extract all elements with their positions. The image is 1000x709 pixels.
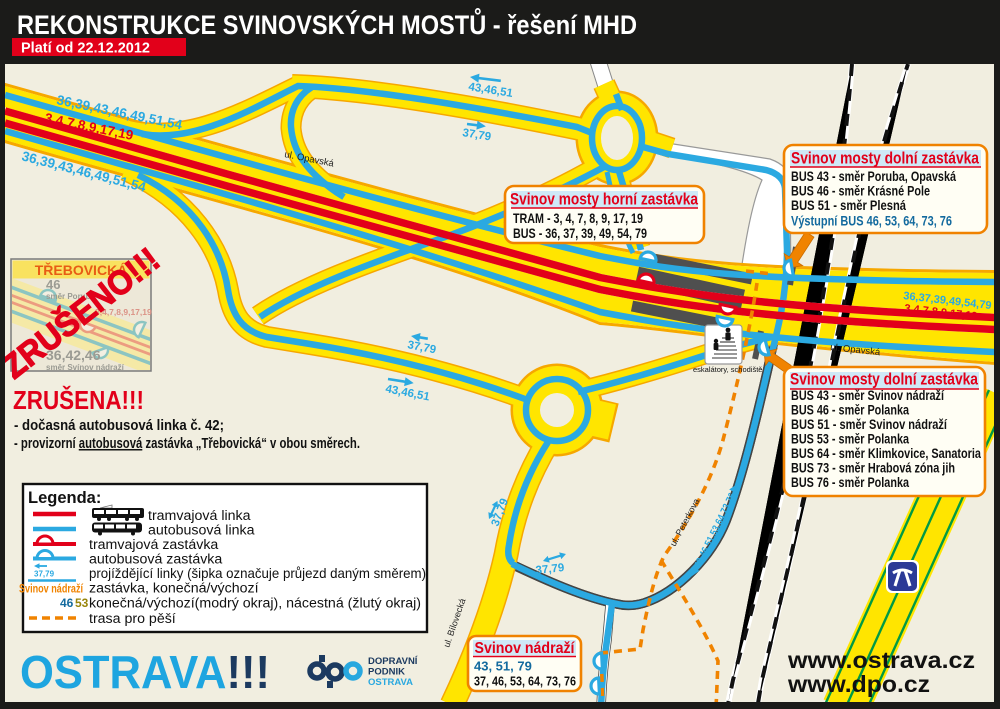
svg-text:53: 53 xyxy=(75,596,89,610)
svg-text:BUS 51 - směr Svinov nádraží: BUS 51 - směr Svinov nádraží xyxy=(791,417,948,432)
svg-text:eskalátory, schodiště: eskalátory, schodiště xyxy=(693,365,762,374)
svg-text:- dočasná autobusová linka č.: - dočasná autobusová linka č. 42; xyxy=(14,417,224,434)
svg-text:BUS 64 - směr Klimkovice, Sana: BUS 64 - směr Klimkovice, Sanatoria xyxy=(791,446,981,461)
svg-text:46: 46 xyxy=(60,596,74,610)
svg-text:trasa pro pěší: trasa pro pěší xyxy=(89,611,176,627)
svg-text:ZRUŠENA!!!: ZRUŠENA!!! xyxy=(13,385,144,415)
svg-text:BUS 43 - směr Svinov nádraží: BUS 43 - směr Svinov nádraží xyxy=(791,388,945,403)
svg-text:Svinov mosty horní zastávka: Svinov mosty horní zastávka xyxy=(510,191,699,209)
svg-text:BUS 46 - směr Krásné Pole: BUS 46 - směr Krásné Pole xyxy=(791,184,930,199)
svg-text:46: 46 xyxy=(46,277,60,292)
svg-text:37,79: 37,79 xyxy=(34,570,55,579)
svg-text:Svinov nádraží: Svinov nádraží xyxy=(475,640,576,657)
svg-text:projíždějící linky (šipka ozna: projíždějící linky (šipka označuje průje… xyxy=(89,565,426,581)
svg-text:www.ostrava.cz: www.ostrava.cz xyxy=(787,647,975,673)
svg-text:směr Svínov nádraží: směr Svínov nádraží xyxy=(46,363,125,372)
svg-text:konečná/výchozí(modrý okraj),: konečná/výchozí(modrý okraj), nácestná (… xyxy=(89,596,421,612)
svg-text:Svinov nádraží: Svinov nádraží xyxy=(19,584,84,596)
svg-text:Svinov mosty dolní zastávka: Svinov mosty dolní zastávka xyxy=(791,150,980,168)
svg-text:DOPRAVNÍ: DOPRAVNÍ xyxy=(368,656,418,667)
svg-text:Výstupní BUS 46, 53, 64, 73,: Výstupní BUS 46, 53, 64, 73, 76 xyxy=(791,213,952,229)
svg-text:BUS 43 - směr Poruba, Opavská: BUS 43 - směr Poruba, Opavská xyxy=(791,169,956,184)
svg-text:BUS - 36, 37, 39, 49, 54, 79: BUS - 36, 37, 39, 49, 54, 79 xyxy=(513,226,647,241)
svg-text:REKONSTRUKCE SVINOVSKÝCH MOSTŮ: REKONSTRUKCE SVINOVSKÝCH MOSTŮ - řešení … xyxy=(17,7,637,40)
svg-text:BUS 73 - směr Hrabová zóna jih: BUS 73 - směr Hrabová zóna jih xyxy=(791,461,955,476)
svg-text:BUS 53 - směr Polanka: BUS 53 - směr Polanka xyxy=(791,432,909,447)
svg-text:BUS 46 - směr Polanka: BUS 46 - směr Polanka xyxy=(791,403,909,418)
svg-text:zastávka, konečná/výchozí: zastávka, konečná/výchozí xyxy=(89,581,259,597)
svg-text:OSTRAVA!!!: OSTRAVA!!! xyxy=(20,646,270,698)
svg-text:Legenda:: Legenda: xyxy=(28,489,101,507)
svg-text:BUS 51 - směr Plesná: BUS 51 - směr Plesná xyxy=(791,198,906,213)
svg-text:43, 51, 79: 43, 51, 79 xyxy=(474,659,532,674)
svg-text:TRAM - 3, 4, 7, 8, 9, 17, 19: TRAM - 3, 4, 7, 8, 9, 17, 19 xyxy=(513,211,643,226)
svg-text:Svinov mosty dolní zastávka: Svinov mosty dolní zastávka xyxy=(790,371,979,389)
svg-text:Platí od 22.12.2012: Platí od 22.12.2012 xyxy=(21,41,150,57)
svg-text:37, 46, 53, 64, 73, 76: 37, 46, 53, 64, 73, 76 xyxy=(474,675,576,689)
svg-text:OSTRAVA: OSTRAVA xyxy=(368,677,413,688)
svg-text:- provizorní autobusová zastáv: - provizorní autobusová zastávka „Třebov… xyxy=(14,435,360,452)
svg-text:BUS 76 - směr Polanka: BUS 76 - směr Polanka xyxy=(791,475,909,490)
svg-text:www.dpo.cz: www.dpo.cz xyxy=(787,671,930,697)
svg-text:PODNIK: PODNIK xyxy=(368,667,405,678)
